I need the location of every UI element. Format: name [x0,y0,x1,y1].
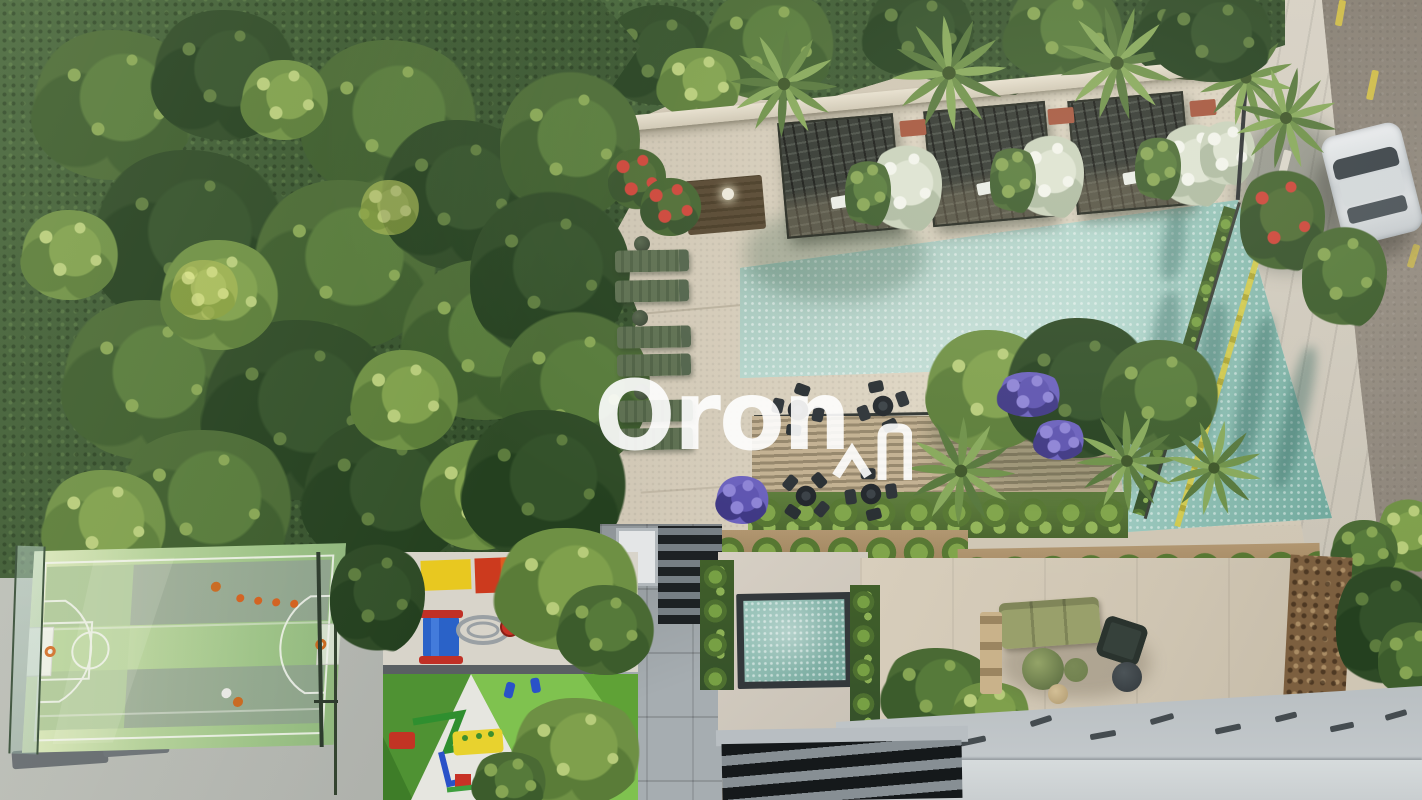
peak-arch-logo-icon [832,420,912,480]
forest-tree-crown [360,180,420,235]
court-fence-rail [314,700,338,703]
play-tunnel [419,610,463,664]
green-bush [1135,132,1181,204]
deck-lamp [722,188,734,200]
forest-tree-crown [240,60,330,140]
playground-tree-crown [556,585,656,675]
playground-tree-crown [330,540,425,655]
playground-tree-crown [470,752,550,800]
sun-lounger [615,249,689,272]
red-flower-planter [640,178,702,236]
playground-divider [383,665,593,674]
outdoor-sofa [999,597,1102,650]
watermark-wordmark: Oron [594,368,849,464]
aerial-render-scene: Oron [0,0,1422,800]
forest-tree-crown [170,260,240,320]
forest-tree-crown [20,210,120,300]
street-bush [1302,222,1387,330]
basketball-court [22,540,347,757]
plunge-pool [736,592,853,689]
watermark: Oron [594,368,934,498]
grand-staircase [722,740,963,800]
forest-tree-crown [350,350,460,450]
sun-lounger [615,279,689,302]
vertical-hedge [850,585,880,725]
sun-lounger [617,325,691,348]
palm-tree [882,6,1016,140]
palm-tree [722,22,846,146]
side-table-round [1112,662,1142,692]
side-tables-stack [980,612,1002,694]
vertical-hedge [700,560,734,690]
pouf-small [1064,658,1088,682]
pouf-tan [1048,684,1068,704]
green-bush [990,142,1036,217]
palm-tree [1158,412,1270,524]
lounger-side-table [632,310,648,326]
green-bush [845,155,891,230]
basketball-court-svg [22,540,347,757]
